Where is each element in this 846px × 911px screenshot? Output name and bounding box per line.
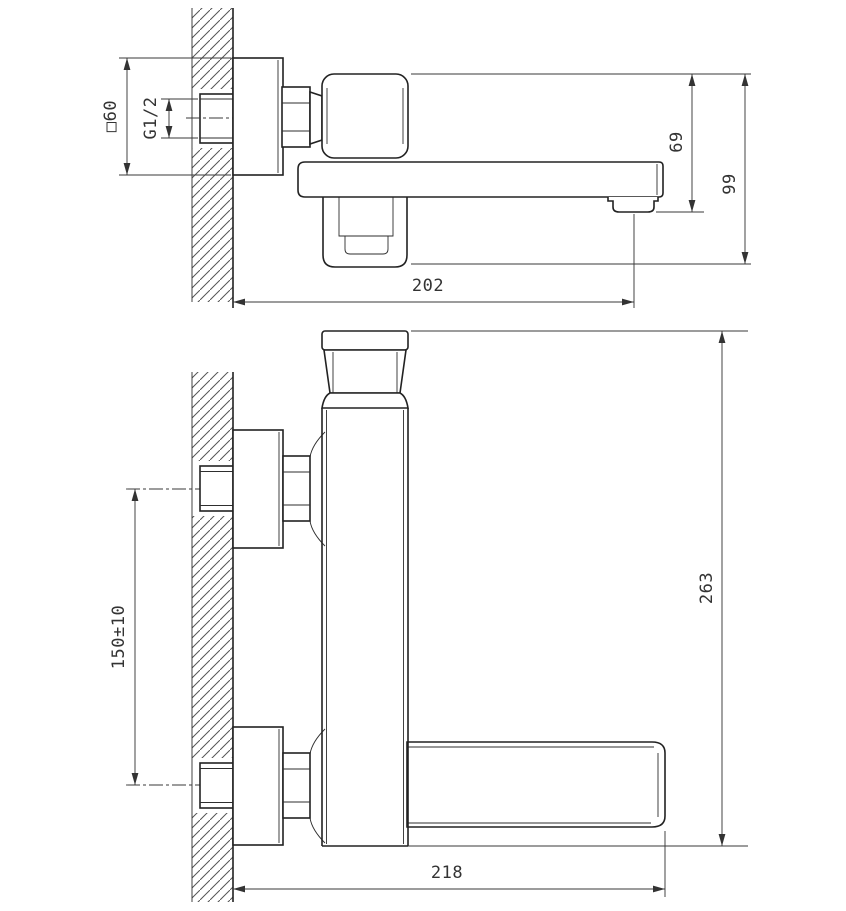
side-view: □60 G1/2 69 99 202 — [101, 8, 751, 308]
drawing-svg: □60 G1/2 69 99 202 — [0, 0, 846, 911]
inlet-thread-pipe — [200, 94, 233, 143]
dim-label-overall-width: 218 — [431, 863, 463, 883]
spout-front — [407, 742, 665, 827]
lever-handle — [322, 331, 408, 408]
cartridge-collar — [322, 393, 408, 408]
diverter-housing — [323, 197, 407, 267]
aerator — [608, 197, 658, 212]
hex-nut — [282, 87, 310, 147]
wall-section-front — [192, 372, 233, 902]
faucet-technical-drawing: □60 G1/2 69 99 202 — [0, 0, 846, 911]
body-column — [322, 408, 408, 846]
dim-label-thread-size: G1/2 — [141, 97, 161, 140]
dim-label-overall-height-front: 263 — [697, 572, 717, 604]
connector-collar — [310, 92, 322, 144]
dim-label-overall-height-side: 99 — [720, 173, 740, 194]
dim-label-flange-size: □60 — [101, 100, 121, 132]
dim-label-spout-height: 69 — [667, 131, 687, 152]
wall-flange — [233, 58, 283, 175]
dim-label-inlet-spacing: 150±10 — [109, 605, 129, 669]
spout — [298, 162, 663, 197]
faucet-body — [322, 74, 408, 158]
dim-inlet-spacing: 150±10 — [109, 489, 135, 785]
dim-spout-reach-202: 202 — [233, 214, 634, 308]
wall-section-top — [192, 8, 233, 308]
dim-label-spout-reach: 202 — [412, 276, 444, 296]
dim-overall-width-218: 218 — [233, 831, 665, 897]
front-view: 150±10 263 218 — [109, 331, 748, 902]
